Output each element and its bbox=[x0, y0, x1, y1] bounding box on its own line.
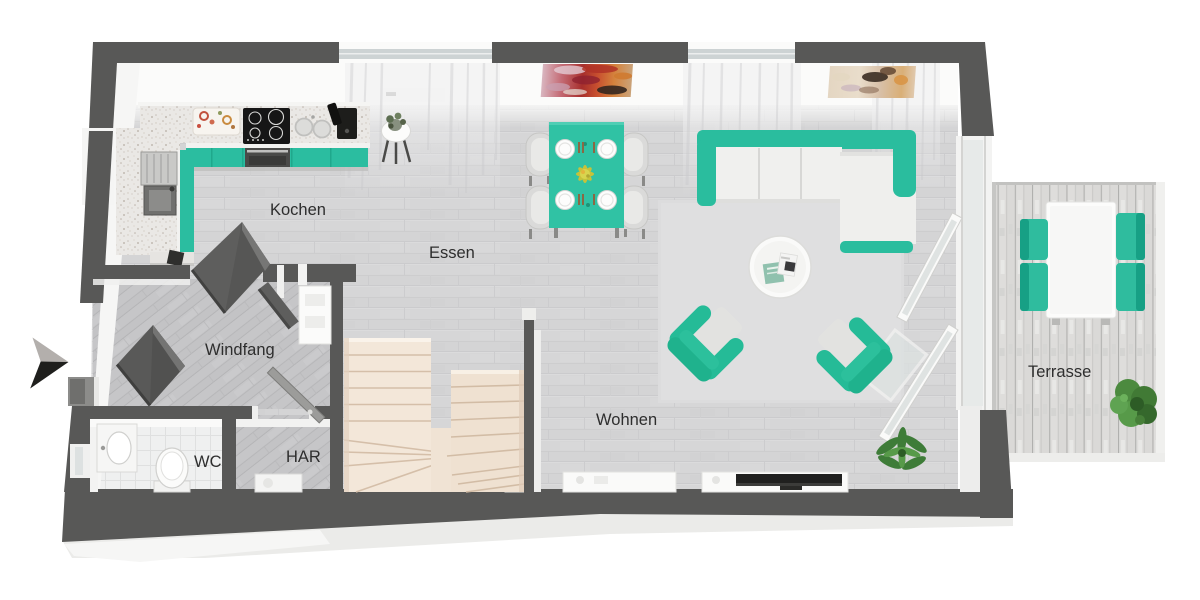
svg-text:Terrasse: Terrasse bbox=[1028, 363, 1091, 381]
svg-text:Wohnen: Wohnen bbox=[596, 411, 657, 429]
svg-text:HAR: HAR bbox=[286, 448, 321, 466]
svg-text:Kochen: Kochen bbox=[270, 201, 326, 219]
svg-text:Windfang: Windfang bbox=[205, 341, 275, 359]
svg-text:WC: WC bbox=[194, 453, 222, 471]
svg-text:Essen: Essen bbox=[429, 244, 475, 262]
